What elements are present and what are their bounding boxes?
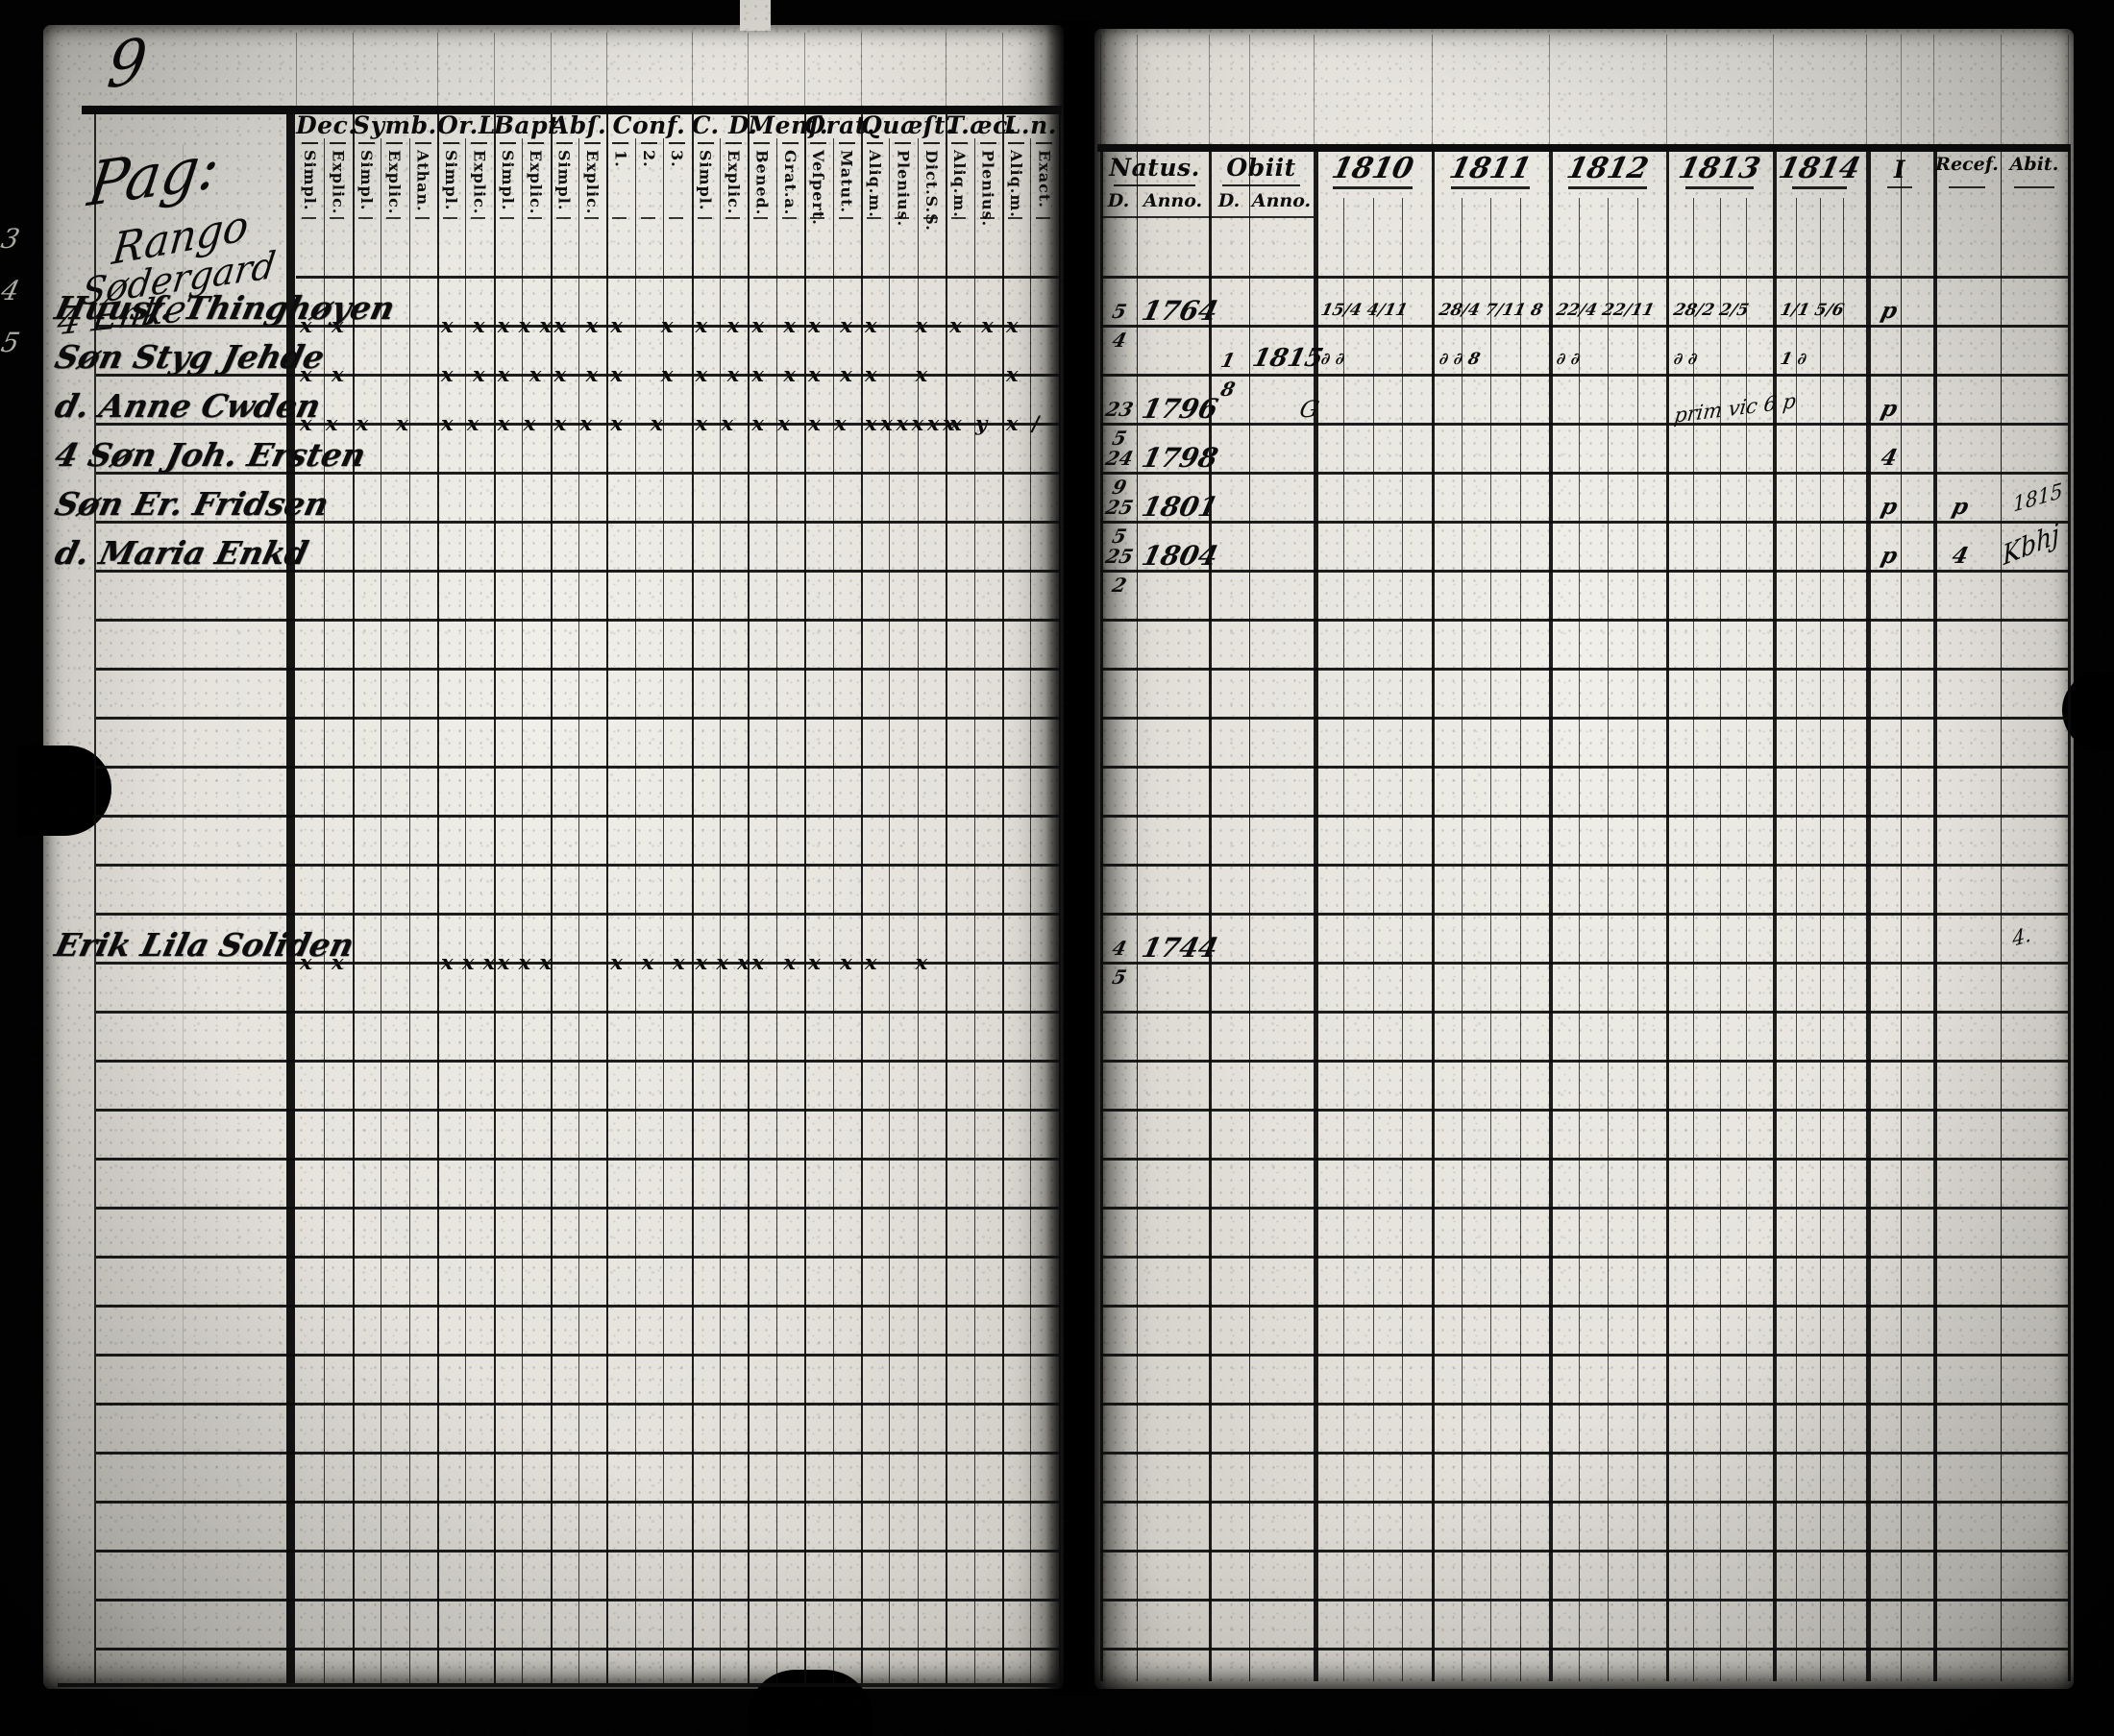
natus-anno-label: Anno.	[1137, 190, 1209, 211]
mark-cell: x x	[554, 362, 611, 386]
grid-line-faint	[2068, 35, 2069, 144]
sub-dash	[556, 217, 571, 219]
grid-line-faint	[1314, 35, 1315, 144]
sub-dash	[698, 217, 712, 219]
column-header: Abſ.	[551, 111, 607, 139]
natus-day-entry: 2	[1099, 574, 1140, 597]
grid-line-faint	[1866, 35, 1867, 144]
row-line	[96, 1011, 1059, 1014]
column-sub-label: 1.	[611, 150, 629, 213]
column-sub-label: Simpl.	[555, 150, 574, 213]
year-marks-entry: ∂ ∂ 8	[1438, 350, 1550, 369]
mark-cell: x x	[696, 313, 752, 337]
sub-dash	[641, 142, 657, 144]
column-sub-label: Plenius.	[979, 150, 997, 213]
year-marks-entry: 15/4 4/11	[1319, 301, 1433, 320]
natus-day-entry: 5	[1099, 300, 1140, 323]
grid-line	[692, 106, 694, 1683]
grid-line	[748, 106, 750, 1683]
sub-dash	[471, 217, 485, 219]
sub-dash	[951, 217, 966, 219]
mark-cell: x x	[610, 362, 695, 386]
grid-line-faint	[692, 33, 693, 106]
column-sub-label: 2.	[640, 150, 658, 213]
mark-cell: x x	[498, 362, 554, 386]
column-sub-label: Explic.	[583, 150, 602, 213]
row-line	[1100, 717, 2068, 720]
sub-dash	[1887, 186, 1912, 188]
book-gutter	[1045, 21, 1107, 1695]
sub-dash	[895, 142, 911, 144]
grid-line-faint	[494, 33, 495, 106]
row-line	[1100, 325, 2068, 328]
sub-dash	[1451, 186, 1530, 189]
column-sub-label: Simpl.	[301, 150, 319, 213]
row-line	[1100, 374, 2068, 377]
sub-dash	[1792, 186, 1847, 189]
grid-line-faint	[437, 33, 438, 106]
grid-line-faint	[861, 33, 862, 106]
grid-line-faint	[946, 33, 946, 106]
mark-cell: x x	[808, 313, 865, 337]
grid-line-faint	[1100, 35, 1101, 144]
row-line	[1100, 1648, 2068, 1650]
mark-cell: xx	[356, 411, 441, 435]
row-line	[96, 1599, 1059, 1602]
sub-dash	[500, 217, 514, 219]
mark-cell: x x x	[498, 313, 554, 337]
column-sub-label: Explic.	[329, 150, 347, 213]
row-name: Søn Styg Jehde	[51, 338, 328, 376]
mark-cell: x x	[696, 362, 752, 386]
sub-dash	[302, 217, 316, 219]
sub-dash	[641, 217, 655, 219]
grid-line	[1490, 198, 1491, 1681]
grid-line-faint	[353, 33, 354, 106]
sub-dash	[1008, 142, 1024, 144]
mark-cell: x x	[300, 362, 356, 386]
mark-cell: x x	[808, 362, 865, 386]
mark-cell: xx	[441, 411, 498, 435]
sub-dash	[612, 217, 627, 219]
grid-line-faint	[2001, 35, 2002, 144]
spine-top-gap	[740, 0, 771, 31]
mark-cell: xx	[751, 411, 808, 435]
row-line	[96, 1452, 1059, 1455]
row-line	[96, 1354, 1059, 1357]
grid-line	[606, 106, 608, 1683]
column-header: Conf.	[606, 111, 691, 139]
sub-dash	[1568, 186, 1647, 189]
year-marks-entry: ∂ ∂	[1672, 350, 1774, 369]
sub-dash	[1333, 186, 1413, 189]
year-marks-entry: ∂ ∂	[1555, 350, 1667, 369]
obiit-anno-entry: 1815	[1250, 344, 1326, 373]
natus-day-entry: 4	[1099, 329, 1140, 352]
mark-cell: x x	[441, 362, 498, 386]
natus-day-entry: 24	[1099, 447, 1140, 470]
mark-cell: x x	[300, 313, 356, 337]
column-sub-label: Explic.	[470, 150, 488, 213]
header-rule	[1097, 144, 2070, 152]
sub-dash	[669, 142, 685, 144]
sub-dash	[867, 142, 883, 144]
grid-line-faint	[1209, 35, 1210, 144]
column-sub-label: Bened.	[752, 150, 771, 213]
sub-dash	[782, 142, 799, 144]
row-line	[1100, 521, 2068, 524]
mark-cell: xxxxxx	[865, 411, 949, 435]
column-sub-label: Aliq.m.	[1007, 150, 1025, 213]
column-sub-label: Simpl.	[357, 150, 376, 213]
year-marks-entry: 1 ∂	[1779, 350, 1867, 369]
sub-dash	[471, 142, 487, 144]
sub-dash	[1008, 217, 1022, 219]
row-line	[58, 1683, 1057, 1687]
obiit-header: Obiit	[1209, 154, 1314, 182]
row-line	[1100, 1109, 2068, 1112]
sub-dash	[980, 142, 996, 144]
column-sub-label: Plenius.	[894, 150, 912, 213]
mark-cell: x/	[1006, 411, 1063, 435]
edge-mark: 5	[0, 327, 23, 358]
sub-dash	[500, 142, 516, 144]
sub-dash	[443, 217, 457, 219]
column-sub-label: Simpl.	[442, 150, 460, 213]
grid-line	[804, 106, 806, 1683]
grid-line	[1520, 198, 1521, 1681]
grid-line	[437, 106, 439, 1683]
year-header: 1810	[1310, 152, 1436, 185]
column-header: C. D.	[692, 111, 749, 139]
grid-line-faint	[1002, 33, 1003, 106]
sub-dash	[2014, 186, 2054, 188]
sub-dash	[810, 142, 826, 144]
sub-dash	[867, 217, 881, 219]
row-line	[96, 864, 1059, 867]
sub-dash	[1685, 186, 1754, 189]
sub-dash	[612, 142, 628, 144]
column-header: T.æc.	[946, 111, 1002, 139]
grid-line	[551, 106, 553, 1683]
grid-line	[353, 106, 355, 1683]
column-header: L.n.	[1002, 111, 1059, 139]
row-line	[96, 1060, 1059, 1063]
row-line	[96, 1403, 1059, 1406]
grid-line	[1402, 198, 1403, 1681]
row-line	[96, 913, 1059, 916]
row-line	[96, 619, 1059, 622]
row-name: Søn Er. Fridsen	[51, 485, 332, 523]
row-line	[96, 1305, 1059, 1308]
grid-line-faint	[1773, 35, 1774, 144]
row-line	[1100, 913, 2068, 916]
grid-line	[1746, 198, 1747, 1681]
binder-tab-left	[17, 746, 111, 836]
row-name: 4 Søn Joh. Ersten	[51, 436, 369, 474]
column-sub-label: Matut.	[838, 150, 856, 213]
row-line	[96, 1648, 1059, 1650]
column-header: Dec.	[296, 111, 353, 139]
row-line	[1100, 668, 2068, 671]
sub-dash	[556, 142, 573, 144]
natus-anno-entry: 1796	[1139, 393, 1221, 425]
row-line	[1100, 570, 2068, 573]
sub-dash	[782, 217, 797, 219]
grid-line	[1343, 198, 1344, 1681]
sub-dash	[753, 217, 768, 219]
mark-cell: xx	[554, 411, 611, 435]
mark-cell: x x	[751, 362, 808, 386]
sub-dash	[1036, 142, 1052, 144]
grid-line	[1796, 198, 1797, 1681]
sub-dash	[698, 142, 714, 144]
row-line	[1100, 962, 2068, 965]
mark-cell: x x	[610, 313, 695, 337]
grid-line-faint	[296, 33, 297, 106]
sub-dash	[443, 142, 459, 144]
sub-dash	[1949, 186, 1985, 188]
column-header: Orat.	[804, 111, 861, 139]
sub-dash	[386, 217, 401, 219]
obiit-anno-label: Anno.	[1249, 190, 1314, 211]
column-header: Bapt.	[494, 111, 551, 139]
grid-line	[1002, 106, 1004, 1683]
column-sub-label: Grat.a.	[781, 150, 799, 213]
row-line	[96, 815, 1059, 818]
row-line	[96, 668, 1059, 671]
row-line	[96, 1550, 1059, 1553]
row-line	[1100, 1452, 2068, 1455]
mark-cell: x x	[808, 950, 865, 974]
sub-dash	[725, 142, 742, 144]
sub-dash	[415, 142, 431, 144]
grid-line	[946, 106, 947, 1683]
row-line	[1100, 216, 1314, 218]
grid-line	[1637, 198, 1638, 1681]
grid-line	[1579, 198, 1580, 1681]
column-sub-label: Aliq.m.	[950, 150, 969, 213]
column-header: Or.L	[437, 111, 494, 139]
sub-dash	[584, 217, 599, 219]
year-marks-entry: ∂ ∂	[1319, 350, 1433, 369]
sub-dash	[839, 142, 855, 144]
sub-dash	[584, 142, 601, 144]
sub-dash	[330, 217, 344, 219]
row-line	[1100, 472, 2068, 475]
row-line	[1100, 1354, 2068, 1357]
column-header: Menſ.	[748, 111, 804, 139]
mark-cell: x x	[865, 950, 949, 974]
grid-line	[1843, 198, 1844, 1681]
mark-cell: x x	[865, 313, 949, 337]
sub-dash	[415, 217, 430, 219]
column-sub-label: Exact.	[1035, 150, 1053, 213]
grid-line-faint	[551, 33, 552, 106]
sub-dash	[386, 142, 403, 144]
grid-line	[2068, 144, 2071, 1681]
grid-line-faint	[1933, 35, 1934, 144]
sub-dash	[330, 142, 346, 144]
row-line	[1100, 1256, 2068, 1259]
sub-dash	[358, 142, 375, 144]
column-sub-label: Aliq.m.	[866, 150, 884, 213]
row-name: d. Maria Enkd	[51, 534, 311, 572]
sub-dash	[1114, 184, 1195, 186]
natus-day-entry: 4	[1099, 937, 1140, 960]
column-sub-label: Explic.	[527, 150, 545, 213]
mark-cell: x x	[300, 950, 356, 974]
sub-dash	[895, 217, 909, 219]
natus-day-entry: 25	[1099, 545, 1140, 568]
row-line	[1100, 1501, 2068, 1504]
row-line	[96, 1158, 1059, 1161]
grid-line	[861, 106, 863, 1683]
mark-cell: xx	[696, 411, 752, 435]
mark-cell: x x	[949, 313, 1006, 337]
obiit-day-entry: 1	[1208, 349, 1248, 372]
mark-cell: x x x	[696, 950, 752, 974]
natus-d-label: D.	[1100, 190, 1137, 211]
mark-cell: x x	[751, 950, 808, 974]
mark-cell: xx	[498, 411, 554, 435]
natus-anno-entry: 1764	[1139, 295, 1221, 327]
sub-dash	[923, 142, 940, 144]
column-sub-label: Explic.	[725, 150, 743, 213]
natus-day-entry: 23	[1099, 398, 1140, 421]
mark-cell: x x	[554, 313, 611, 337]
natus-anno-entry: 1744	[1139, 932, 1221, 964]
sub-dash	[358, 217, 373, 219]
row-line	[96, 1207, 1059, 1210]
sub-dash	[528, 217, 542, 219]
sub-dash	[725, 217, 740, 219]
mark-cell: xx	[610, 411, 695, 435]
sub-dash	[302, 142, 318, 144]
mark-cell: x x x	[498, 950, 554, 974]
column-header: Quæſt.	[861, 111, 946, 139]
row-line	[96, 1109, 1059, 1112]
row-line	[1100, 1011, 2068, 1014]
sub-dash	[810, 217, 824, 219]
row-line	[1100, 1599, 2068, 1602]
row-line	[96, 766, 1059, 769]
row-line	[1100, 1060, 2068, 1063]
edge-mark: 3	[0, 223, 23, 255]
sub-dash	[980, 217, 995, 219]
grid-line-faint	[1901, 35, 1902, 144]
row-line	[1100, 815, 2068, 818]
sub-dash	[528, 142, 544, 144]
mark-cell: x x	[751, 313, 808, 337]
row-line	[1100, 1550, 2068, 1553]
grid-line-faint	[804, 33, 805, 106]
sub-dash	[753, 142, 770, 144]
column-sub-label: Dict.S.S.	[922, 150, 941, 213]
year-marks-entry: 22/4 22/11	[1555, 301, 1667, 320]
row-line	[96, 1256, 1059, 1259]
grid-line	[1462, 198, 1463, 1681]
grid-line-faint	[1249, 35, 1250, 144]
mark-cell: x x	[441, 313, 498, 337]
grid-line	[1059, 106, 1061, 1683]
abit-header: Abit.	[2001, 154, 2068, 175]
row-line	[1100, 1158, 2068, 1161]
row-line	[96, 1501, 1059, 1504]
column-header: Symb.	[353, 111, 437, 139]
column-sub-label: Explic.	[385, 150, 404, 213]
row-line	[1100, 619, 2068, 622]
column-sub-label: Veſpert.	[809, 150, 827, 213]
year-header: 1813	[1662, 152, 1777, 185]
mark-cell: x x x	[610, 950, 695, 974]
year-header: 1811	[1428, 152, 1553, 185]
mark-cell: x x	[865, 362, 949, 386]
mark-cell: x	[1006, 313, 1063, 337]
obiit-d-label: D.	[1209, 190, 1249, 211]
mark-cell: xy	[949, 411, 1006, 435]
mark-cell: x x x	[441, 950, 498, 974]
grid-line-faint	[1549, 35, 1550, 144]
column-sub-label: Simpl.	[697, 150, 715, 213]
natus-anno-entry: 1798	[1139, 442, 1221, 474]
grid-line-faint	[1137, 35, 1138, 144]
scanned-register-spread: 9 Dec.Simpl.Explic.Symb.Simpl.Explic.Ath…	[0, 0, 2114, 1736]
edge-mark: 4	[0, 275, 23, 306]
sub-dash	[839, 217, 853, 219]
row-line	[1100, 766, 2068, 769]
mark-cell: xx	[300, 411, 356, 435]
recef-header: Recef.	[1933, 154, 2001, 175]
grid-line	[494, 106, 496, 1683]
bottom-spine-shadow	[748, 1670, 873, 1736]
row-line	[1100, 1403, 2068, 1406]
mark-cell: xx	[808, 411, 865, 435]
row-line	[296, 276, 1059, 279]
extra-column-header: I	[1866, 156, 1933, 183]
grid-line-faint	[1666, 35, 1667, 144]
row-name: d. Anne Cwden	[51, 387, 324, 425]
row-line	[1100, 423, 2068, 426]
row-line	[96, 717, 1059, 720]
natus-header: Natus.	[1100, 154, 1209, 182]
row-line	[1100, 864, 2068, 867]
year-marks-entry: 28/2 2/5	[1672, 301, 1774, 320]
grid-line	[1820, 198, 1821, 1681]
grid-line	[1608, 198, 1609, 1681]
year-marks-entry: 28/4 7/11 8	[1438, 301, 1550, 320]
year-marks-entry: 1/1 5/6	[1779, 301, 1867, 320]
year-header: 1812	[1545, 152, 1670, 185]
grid-line-faint	[606, 33, 607, 106]
natus-anno-entry: 1801	[1139, 491, 1221, 523]
grid-line-faint	[748, 33, 749, 106]
year-header: 1814	[1769, 152, 1870, 185]
sub-dash	[1036, 217, 1050, 219]
row-line	[1100, 1305, 2068, 1308]
natus-anno-entry: 1804	[1139, 540, 1221, 572]
row-line	[1100, 276, 2068, 279]
sub-dash	[1222, 184, 1300, 186]
natus-day-entry: 5	[1099, 966, 1140, 989]
grid-line-faint	[1432, 35, 1433, 144]
row-line	[1100, 1207, 2068, 1210]
sub-dash	[923, 217, 938, 219]
column-sub-label: Simpl.	[499, 150, 517, 213]
column-sub-label: Athan.	[414, 150, 432, 213]
sub-dash	[951, 142, 968, 144]
grid-line	[1373, 198, 1374, 1681]
